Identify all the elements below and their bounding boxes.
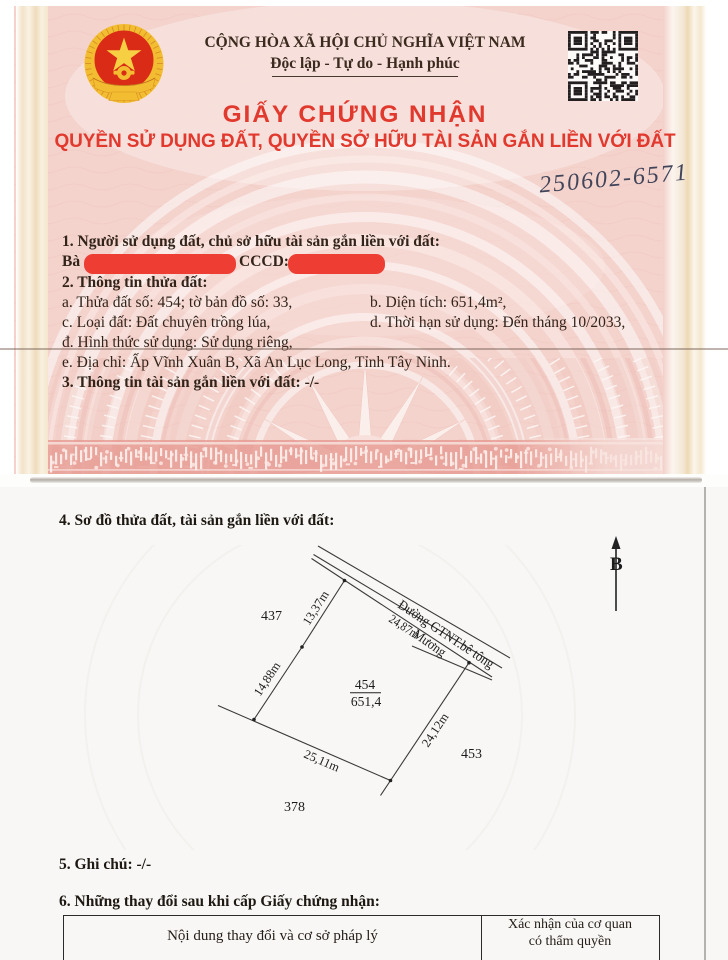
- svg-text:14,88m: 14,88m: [251, 659, 284, 699]
- svg-text:B: B: [610, 554, 623, 575]
- svg-text:454: 454: [355, 677, 376, 692]
- svg-text:378: 378: [284, 800, 305, 815]
- svg-text:437: 437: [261, 609, 282, 624]
- svg-text:651,4: 651,4: [351, 694, 382, 709]
- svg-text:453: 453: [461, 747, 482, 762]
